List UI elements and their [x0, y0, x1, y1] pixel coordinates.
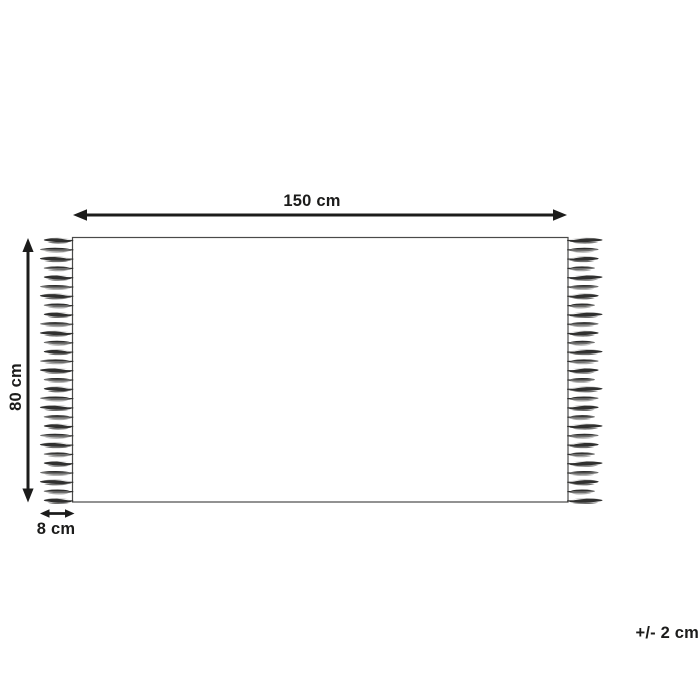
tassel — [567, 248, 598, 253]
tassel — [40, 256, 73, 262]
tassel — [567, 378, 595, 383]
tassel — [567, 480, 598, 486]
tassel — [40, 405, 73, 411]
fringe-left — [40, 238, 73, 504]
tassel — [567, 322, 598, 327]
tassel — [567, 238, 602, 244]
fringe-label: 8 cm — [37, 520, 75, 538]
tassel — [567, 498, 602, 504]
tassel — [567, 368, 598, 374]
tassel — [44, 387, 73, 393]
fringe-dimension-arrow — [40, 509, 75, 518]
tassel — [44, 238, 73, 244]
tassel — [44, 415, 74, 420]
rug-dimension-diagram: 150 cm 80 cm 8 cm +/- 2 cm — [0, 0, 700, 700]
tassel — [567, 304, 595, 309]
tassel — [567, 331, 598, 337]
tassel — [44, 461, 73, 467]
arrowhead-left-small-icon — [40, 509, 50, 518]
tassel — [567, 341, 595, 346]
tassel — [567, 387, 602, 393]
tassel — [567, 434, 598, 439]
tassel — [40, 471, 73, 476]
tassel — [44, 349, 73, 355]
tassel — [44, 378, 74, 383]
tassel — [567, 359, 598, 364]
tassel — [44, 498, 73, 504]
arrowhead-right-small-icon — [65, 509, 75, 518]
tassel — [567, 266, 595, 271]
tassel — [44, 490, 74, 495]
tassel — [40, 480, 73, 486]
tolerance-note: +/- 2 cm — [635, 624, 699, 642]
tassel — [567, 424, 602, 430]
tassel — [40, 442, 73, 448]
tassel — [567, 461, 602, 467]
tassel — [567, 294, 598, 300]
tassel — [40, 397, 73, 402]
tassel — [567, 312, 602, 318]
tassel — [567, 490, 595, 495]
arrowhead-down-icon — [22, 489, 33, 503]
tassel — [44, 266, 74, 271]
tassel — [44, 424, 73, 430]
arrowhead-up-icon — [22, 238, 33, 252]
tassel — [40, 285, 73, 290]
tassel — [40, 322, 73, 327]
tassel — [567, 285, 598, 290]
height-label: 80 cm — [7, 363, 25, 411]
tassel — [44, 312, 73, 318]
tassel — [44, 275, 73, 281]
tassel — [567, 349, 602, 355]
tassel — [567, 397, 598, 402]
rug-outline — [73, 238, 569, 503]
fringe-right — [567, 238, 602, 504]
tassel — [44, 304, 74, 309]
tassel — [40, 331, 73, 337]
tassel — [44, 452, 74, 457]
width-label: 150 cm — [283, 192, 340, 210]
arrowhead-left-icon — [73, 209, 87, 221]
tassel — [40, 248, 73, 253]
tassel — [567, 256, 598, 262]
diagram-canvas: 150 cm 80 cm 8 cm +/- 2 cm — [0, 0, 700, 700]
tassel — [40, 294, 73, 300]
tassel — [567, 471, 598, 476]
tassel — [567, 275, 602, 281]
width-dimension-arrow — [73, 209, 567, 221]
tassel — [40, 434, 73, 439]
arrowhead-right-icon — [553, 209, 567, 221]
tassel — [40, 359, 73, 364]
tassel — [567, 405, 598, 411]
tassel — [567, 452, 595, 457]
tassel — [567, 415, 595, 420]
tassel — [567, 442, 598, 448]
tassel — [44, 341, 74, 346]
tassel — [40, 368, 73, 374]
